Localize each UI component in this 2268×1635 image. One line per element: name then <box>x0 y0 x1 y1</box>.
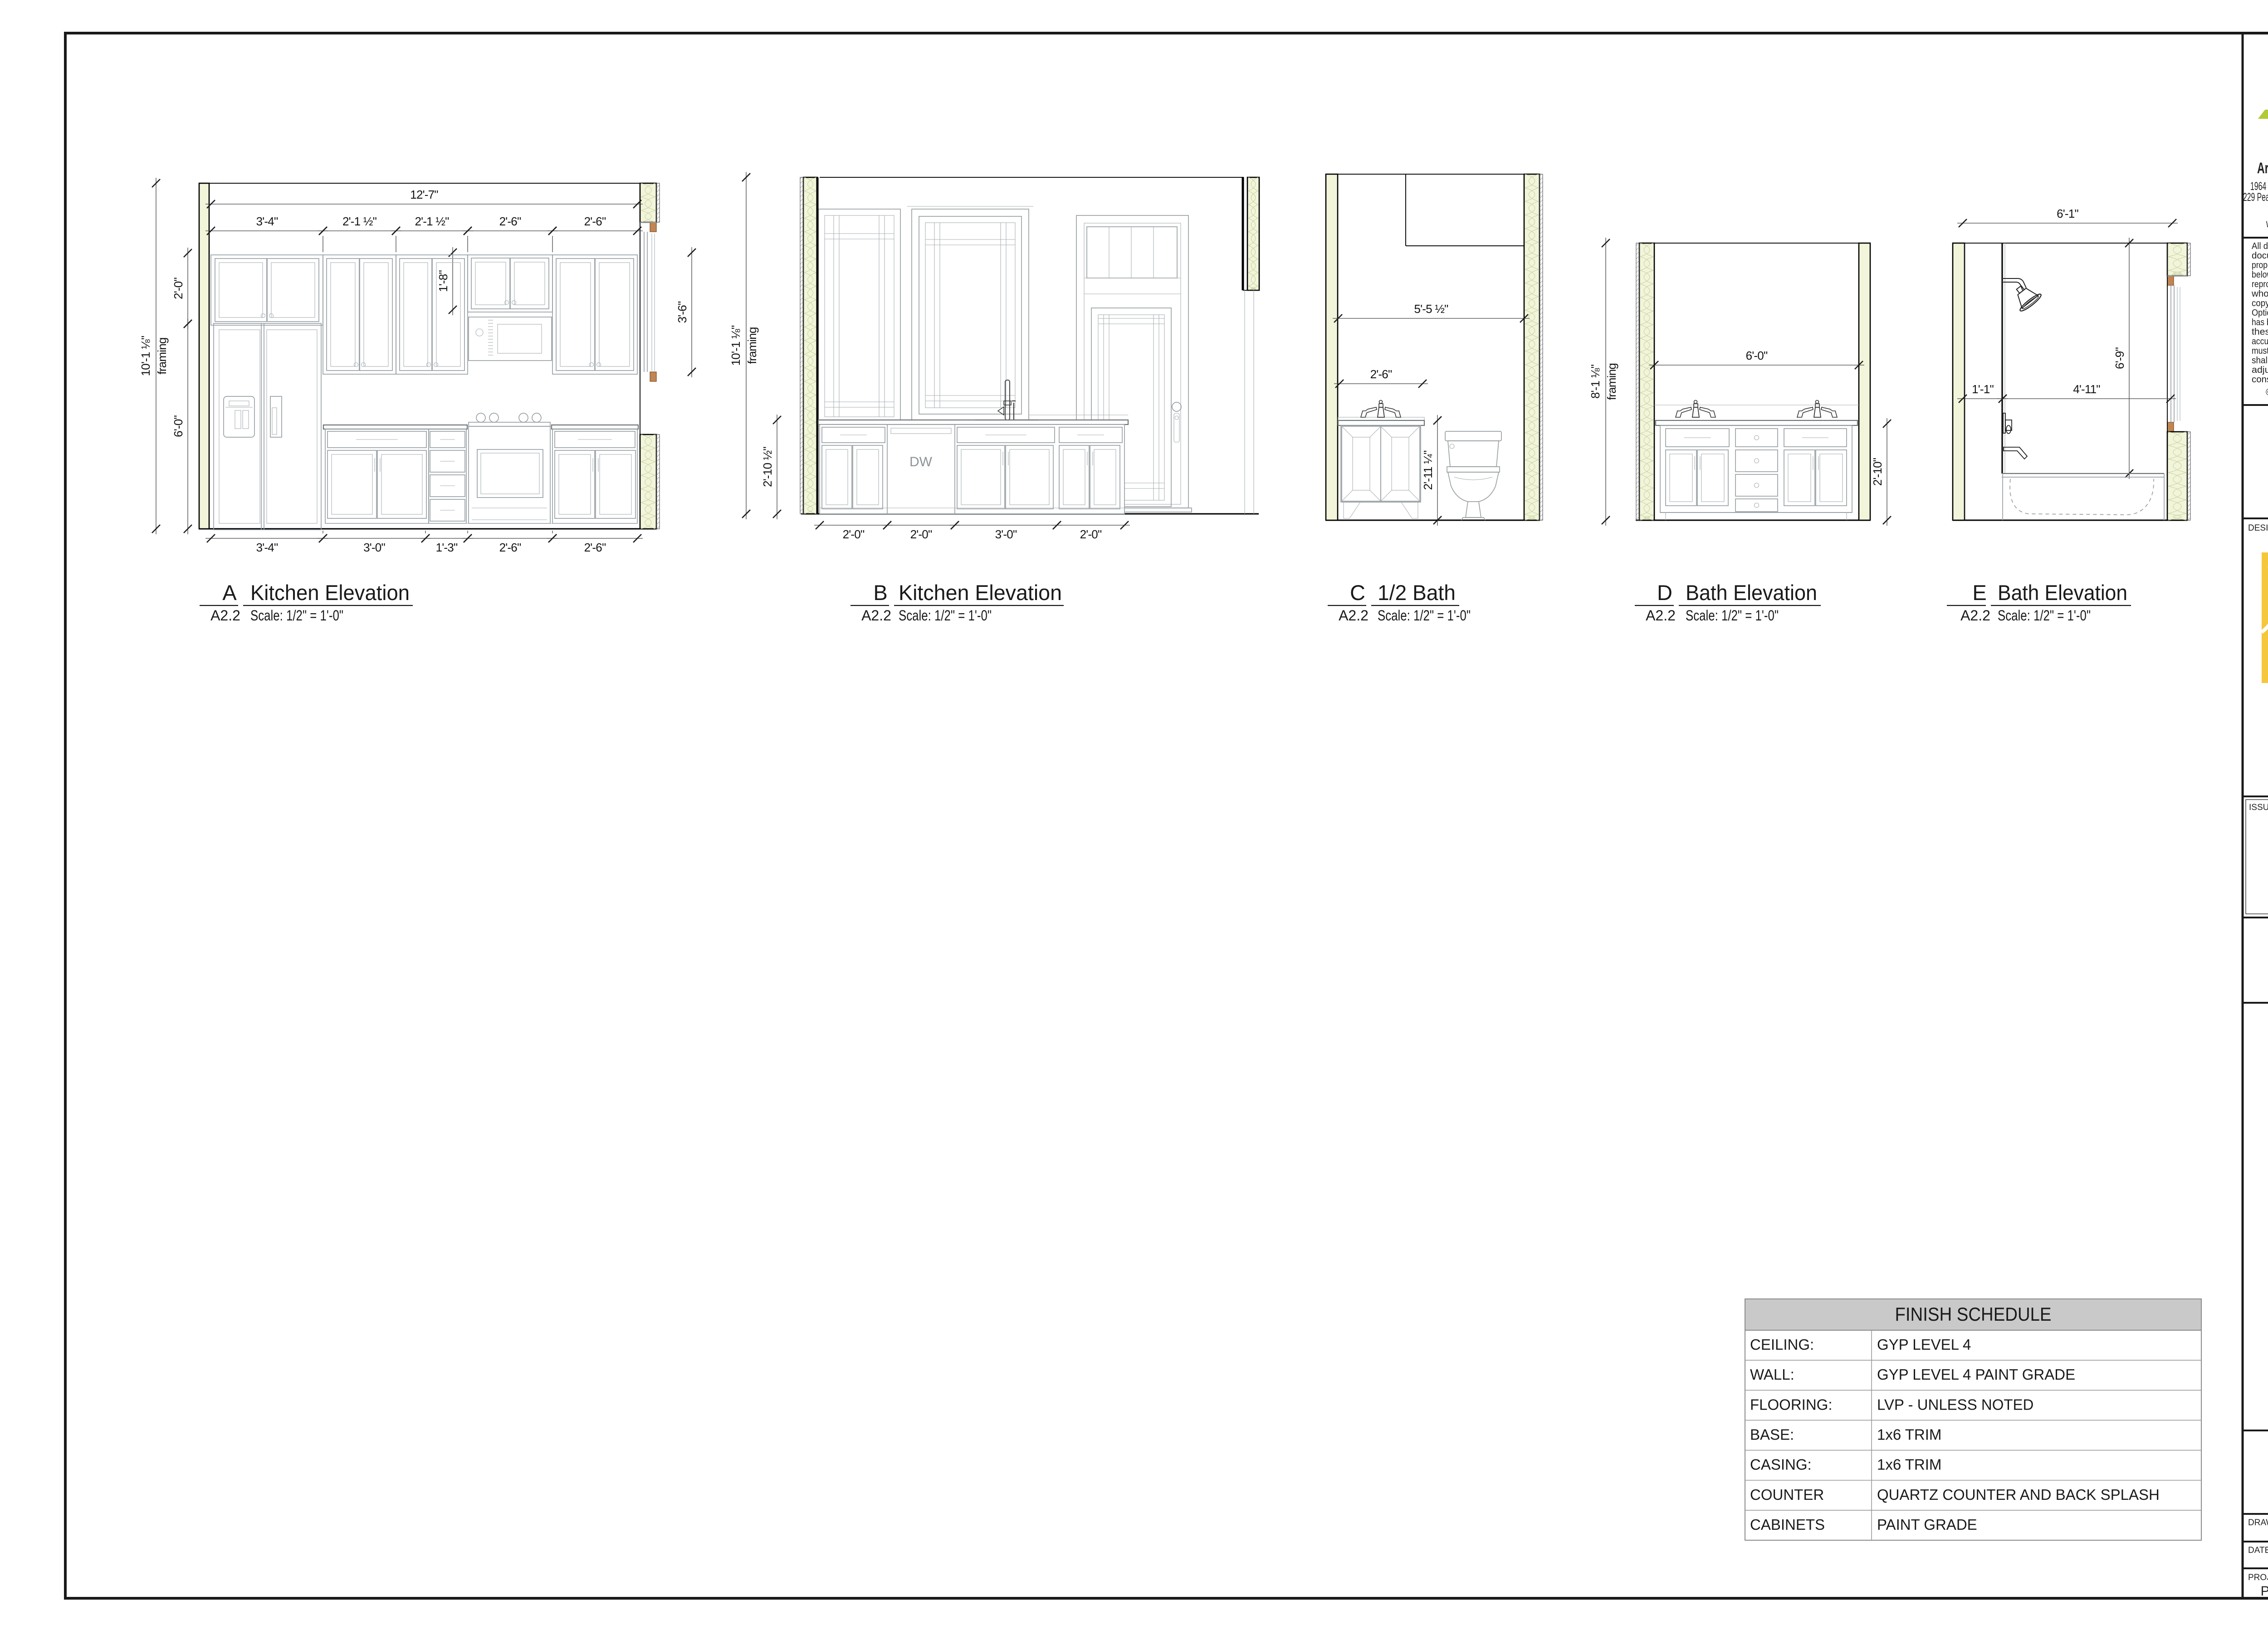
svg-text:3'-6": 3'-6" <box>675 301 689 323</box>
svg-text:construction.: construction. <box>2252 374 2268 385</box>
svg-text:FLOORING:: FLOORING: <box>1750 1396 1833 1413</box>
svg-text:Scale: 1/2" = 1'-0": Scale: 1/2" = 1'-0" <box>250 607 343 624</box>
svg-text:© 2024 Opticos Design Inc.: © 2024 Opticos Design Inc. <box>2266 386 2268 398</box>
svg-text:2'-1 ½": 2'-1 ½" <box>342 215 377 228</box>
svg-text:A2.2: A2.2 <box>210 607 240 624</box>
svg-text:6'-0": 6'-0" <box>1746 349 1768 362</box>
svg-text:2'-6": 2'-6" <box>499 541 521 554</box>
svg-text:shall be responsible for any c: shall be responsible for any changes or <box>2252 355 2268 366</box>
svg-text:Kitchen Elevation: Kitchen Elevation <box>899 581 1062 605</box>
svg-text:property of the architect/desi: property of the architect/designer indic… <box>2252 260 2268 270</box>
svg-text:Opticos Design Inc. Although e: Opticos Design Inc. Although every effor… <box>2252 307 2268 318</box>
svg-text:copyright law without prior co: copyright law without prior consent from <box>2252 298 2268 308</box>
svg-text:2'-0": 2'-0" <box>843 527 865 541</box>
svg-text:10'-1 ⅛": 10'-1 ⅛" <box>729 325 743 366</box>
svg-text:1'-1": 1'-1" <box>1972 382 1994 396</box>
svg-text:2'-0": 2'-0" <box>910 527 932 541</box>
svg-text:www.architecturaloverflow.com: www.architecturaloverflow.com <box>2266 217 2268 230</box>
svg-text:C: C <box>1350 581 1365 605</box>
svg-text:documents are the original wor: documents are the original work and <box>2252 250 2268 261</box>
svg-text:D: D <box>1657 581 1672 605</box>
svg-text:2'-11 ¼": 2'-11 ¼" <box>1421 450 1435 490</box>
svg-text:DESIGN ARCHITECT:: DESIGN ARCHITECT: <box>2248 523 2268 533</box>
svg-text:whole is strictly prohibited b: whole is strictly prohibited by federal <box>2251 288 2268 299</box>
svg-text:accuracy, the installer, owner: accuracy, the installer, owner or contra… <box>2252 336 2268 347</box>
svg-text:DATE: DATE <box>2248 1546 2268 1555</box>
svg-text:PRJ - 342: PRJ - 342 <box>2261 1584 2268 1599</box>
svg-text:adjustments required during ac: adjustments required during actual <box>2252 365 2268 375</box>
svg-text:1'-3": 1'-3" <box>436 541 458 554</box>
svg-text:CASING:: CASING: <box>1750 1456 1812 1473</box>
svg-text:3'-0": 3'-0" <box>995 527 1017 541</box>
svg-text:10'-1 ⅛": 10'-1 ⅛" <box>139 336 152 376</box>
svg-text:3'-0": 3'-0" <box>363 541 385 554</box>
svg-text:6'-0": 6'-0" <box>171 415 185 437</box>
svg-text:4'-11": 4'-11" <box>2073 382 2100 396</box>
svg-text:PROJECT NUMBER: PROJECT NUMBER <box>2248 1573 2268 1582</box>
svg-text:reproduction of these document: reproduction of these documents in part … <box>2252 279 2268 289</box>
svg-text:has been made in designing and: has been made in designing and preparing <box>2252 317 2268 327</box>
svg-text:CEILING:: CEILING: <box>1750 1336 1814 1353</box>
svg-text:must check all details and dim: must check all details and dimensions an… <box>2252 346 2268 356</box>
svg-text:Scale: 1/2" = 1'-0": Scale: 1/2" = 1'-0" <box>1686 607 1779 624</box>
svg-text:Scale: 1/2" = 1'-0": Scale: 1/2" = 1'-0" <box>899 607 992 624</box>
svg-text:Scale: 1/2" = 1'-0": Scale: 1/2" = 1'-0" <box>1998 607 2091 624</box>
svg-text:8'-1 ⅛": 8'-1 ⅛" <box>1589 364 1602 399</box>
svg-text:2'-6": 2'-6" <box>584 541 606 554</box>
svg-text:Bath Elevation: Bath Elevation <box>1998 581 2127 605</box>
svg-text:framing: framing <box>1605 363 1618 400</box>
svg-text:GYP LEVEL 4: GYP LEVEL 4 <box>1877 1336 1971 1353</box>
svg-text:COUNTER: COUNTER <box>1750 1486 1824 1503</box>
svg-text:12'-7": 12'-7" <box>410 188 438 201</box>
svg-text:QUARTZ COUNTER AND BACK SPLASH: QUARTZ COUNTER AND BACK SPLASH <box>1877 1486 2160 1503</box>
svg-text:DW: DW <box>909 454 933 469</box>
svg-text:BASE:: BASE: <box>1750 1426 1794 1443</box>
svg-text:A2.2: A2.2 <box>861 607 891 624</box>
svg-text:2'-10 ½": 2'-10 ½" <box>761 447 774 487</box>
svg-text:3'-4": 3'-4" <box>256 215 278 228</box>
svg-text:2'-6": 2'-6" <box>499 215 521 228</box>
svg-text:GYP LEVEL 4 PAINT GRADE: GYP LEVEL 4 PAINT GRADE <box>1877 1366 2075 1383</box>
svg-text:WALL:: WALL: <box>1750 1366 1794 1383</box>
svg-text:Bath Elevation: Bath Elevation <box>1686 581 1817 605</box>
svg-text:All designs and plans containe: All designs and plans contained in these <box>2252 241 2268 251</box>
svg-text:Kitchen Elevation: Kitchen Elevation <box>250 581 410 605</box>
svg-text:2'-6": 2'-6" <box>584 215 606 228</box>
svg-text:229 Peachtree St NE, Ste 1008: 229 Peachtree St NE, Ste 1008 Atlanta, G… <box>2243 191 2268 204</box>
svg-text:LVP - UNLESS NOTED: LVP - UNLESS NOTED <box>1877 1396 2033 1413</box>
svg-text:E: E <box>1972 581 1986 605</box>
svg-text:1/2 Bath: 1/2 Bath <box>1378 581 1456 605</box>
svg-text:A2.2: A2.2 <box>1646 607 1676 624</box>
svg-text:2'-1 ½": 2'-1 ½" <box>415 215 449 228</box>
svg-text:1x6 TRIM: 1x6 TRIM <box>1877 1456 1941 1473</box>
svg-text:2'-0": 2'-0" <box>171 278 185 299</box>
svg-text:2'-10": 2'-10" <box>1871 458 1884 486</box>
svg-text:Architectural Overflow, LLC: Architectural Overflow, LLC <box>2257 160 2268 177</box>
svg-text:DRAWING BY: DRAWING BY <box>2248 1518 2268 1528</box>
svg-text:A2.2: A2.2 <box>1960 607 1990 624</box>
svg-text:1'-8": 1'-8" <box>436 270 450 292</box>
svg-text:these plans and reviewing them: these plans and reviewing them for <box>2252 327 2268 337</box>
svg-text:6'-9": 6'-9" <box>2113 347 2126 369</box>
svg-text:A: A <box>222 581 237 605</box>
svg-text:PAINT GRADE: PAINT GRADE <box>1877 1516 1977 1533</box>
svg-text:2'-6": 2'-6" <box>1370 367 1392 381</box>
svg-text:A2.2: A2.2 <box>1339 607 1369 624</box>
svg-text:Scale: 1/2" = 1'-0": Scale: 1/2" = 1'-0" <box>1378 607 1471 624</box>
svg-text:5'-5 ½": 5'-5 ½" <box>1414 302 1448 316</box>
svg-text:6'-1": 6'-1" <box>2057 207 2078 220</box>
svg-text:framing: framing <box>155 337 169 374</box>
svg-text:FINISH SCHEDULE: FINISH SCHEDULE <box>1895 1303 2052 1325</box>
svg-text:below or Opticos Design Inc. A: below or Opticos Design Inc. Any reuse o… <box>2252 269 2268 280</box>
svg-text:CABINETS: CABINETS <box>1750 1516 1825 1533</box>
svg-text:B: B <box>873 581 887 605</box>
svg-text:framing: framing <box>745 327 759 364</box>
svg-text:2'-0": 2'-0" <box>1080 527 1102 541</box>
svg-text:ISSUE:: ISSUE: <box>2249 803 2268 812</box>
svg-text:1x6 TRIM: 1x6 TRIM <box>1877 1426 1941 1443</box>
svg-text:3'-4": 3'-4" <box>256 541 278 554</box>
